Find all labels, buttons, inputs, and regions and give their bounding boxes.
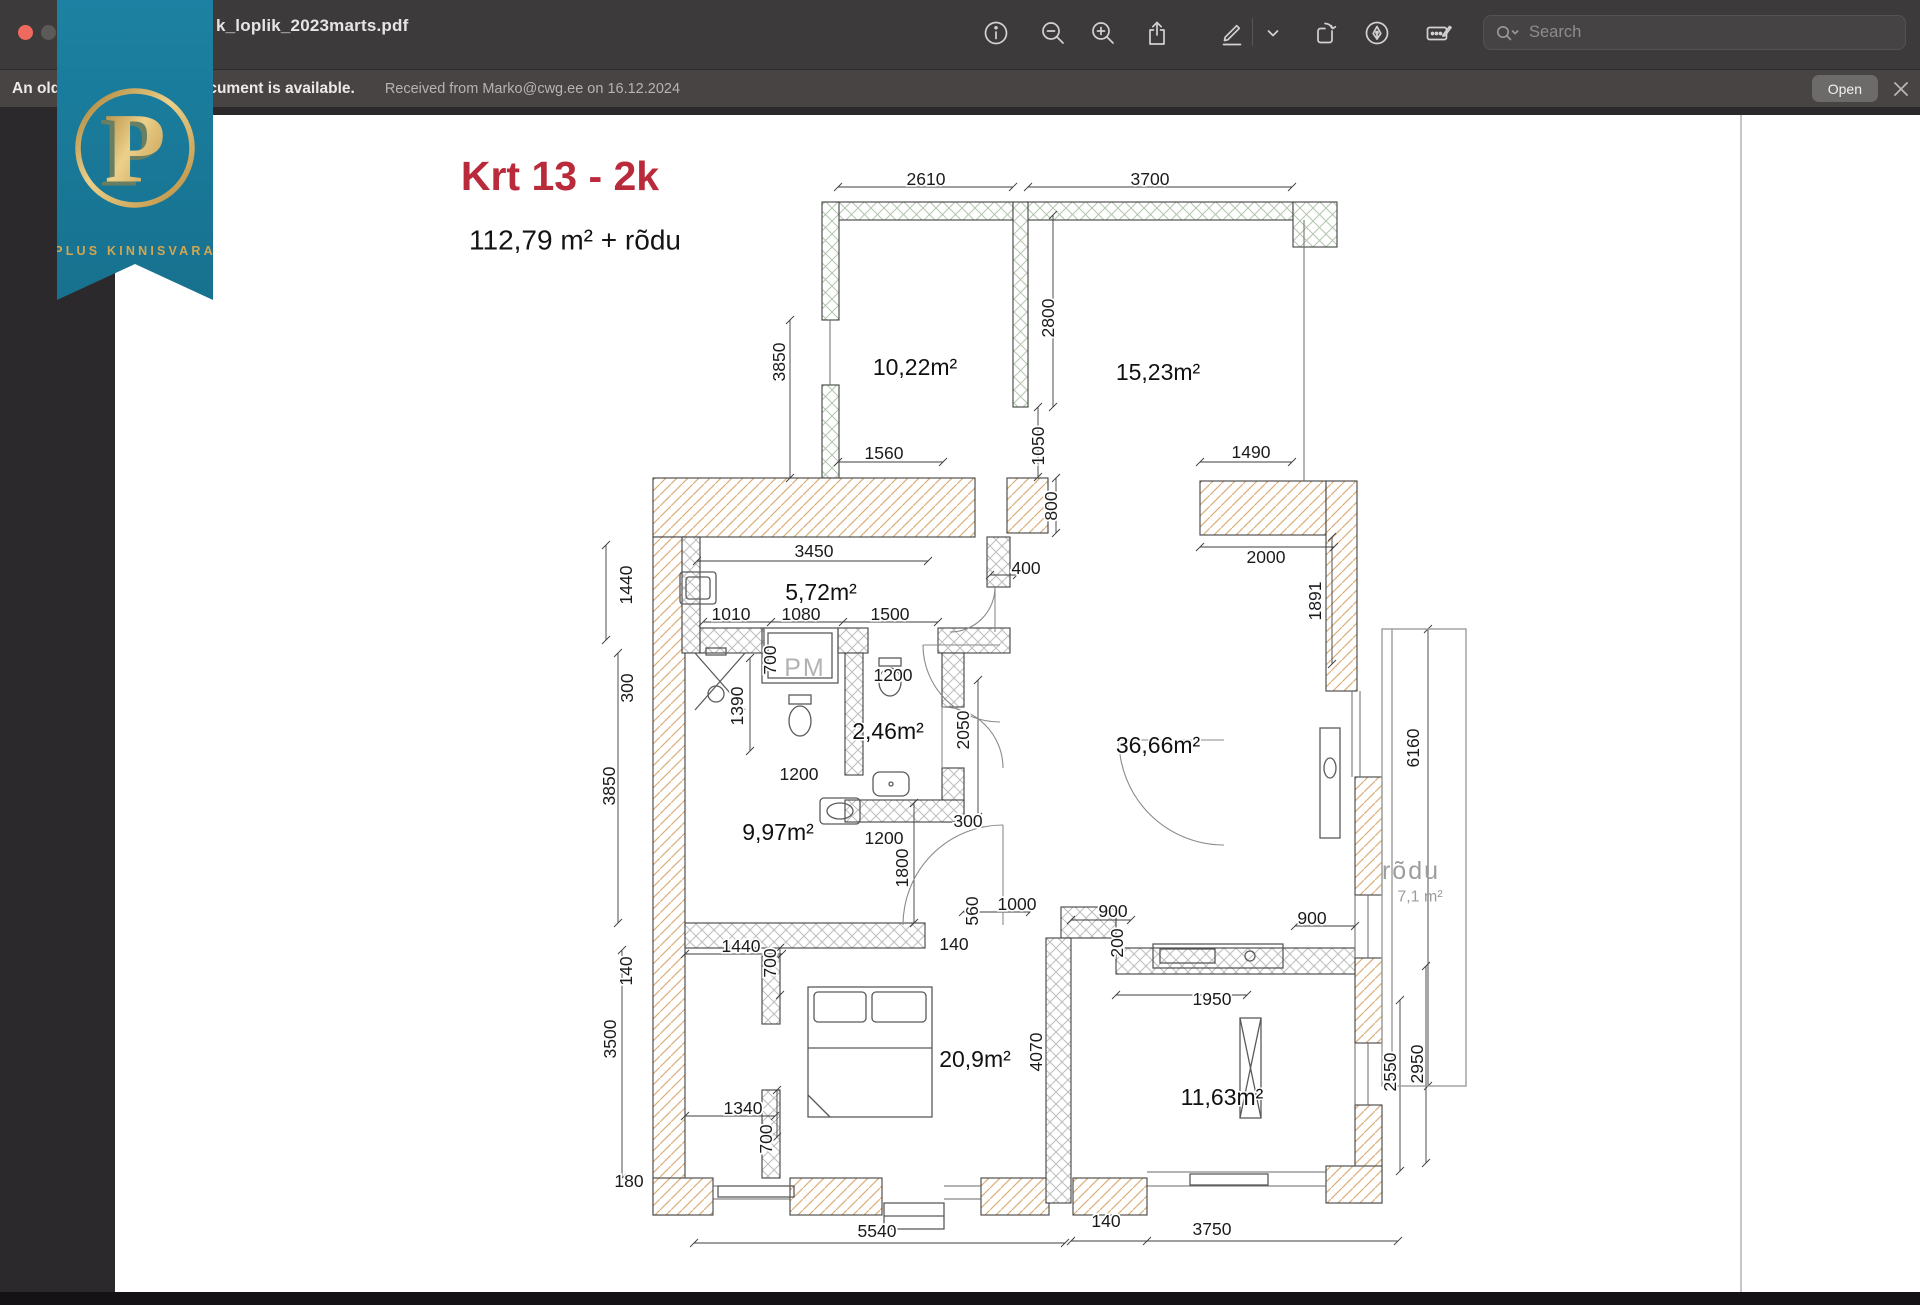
document-title: k_loplik_2023marts.pdf: [216, 16, 408, 36]
open-button[interactable]: Open: [1812, 75, 1878, 102]
badge-name: PLUS KINNISVARA: [57, 244, 213, 258]
sign-button[interactable]: [1362, 18, 1392, 48]
search-input[interactable]: [1527, 22, 1895, 43]
document-area: [0, 107, 1920, 1292]
info-icon: [981, 18, 1011, 48]
share-icon: [1142, 18, 1172, 48]
markup-menu-chevron[interactable]: [1258, 18, 1288, 48]
zoom-out-button[interactable]: [1038, 18, 1068, 48]
pdf-page: [115, 115, 1920, 1292]
close-window-button[interactable]: [18, 25, 33, 40]
zoom-out-icon: [1038, 18, 1068, 48]
title-bar: k_loplik_2023marts.pdf: [0, 0, 1920, 69]
preview-window: k_loplik_2023marts.pdf: [0, 0, 1920, 1305]
share-button[interactable]: [1142, 18, 1172, 48]
info-button[interactable]: [981, 18, 1011, 48]
notification-bar: An older version of this document is ava…: [0, 69, 1920, 107]
minimize-window-button[interactable]: [41, 25, 56, 40]
agency-badge: P P PLUS KINNISVARA: [57, 0, 213, 300]
text-annotation-button[interactable]: [1423, 18, 1453, 48]
markup-pencil-icon: [1215, 18, 1245, 48]
rotate-left-icon: [1311, 18, 1341, 48]
pen-nib-icon: [1362, 18, 1392, 48]
notification-detail: Received from Marko@cwg.ee on 16.12.2024: [385, 81, 680, 97]
badge-letter: P: [104, 93, 165, 204]
chevron-down-icon: [1258, 18, 1288, 48]
toolbar-divider: [1252, 18, 1253, 46]
rotate-button[interactable]: [1311, 18, 1341, 48]
search-icon: [1494, 22, 1520, 44]
text-box-icon: [1423, 18, 1453, 48]
close-icon: [1892, 80, 1910, 98]
zoom-in-button[interactable]: [1088, 18, 1118, 48]
notification-close-button[interactable]: [1892, 80, 1910, 98]
page-edge: [1740, 115, 1742, 1292]
zoom-in-icon: [1088, 18, 1118, 48]
search-field[interactable]: [1483, 15, 1906, 50]
window-bottom-edge: [0, 1292, 1920, 1305]
markup-button[interactable]: [1215, 18, 1245, 48]
